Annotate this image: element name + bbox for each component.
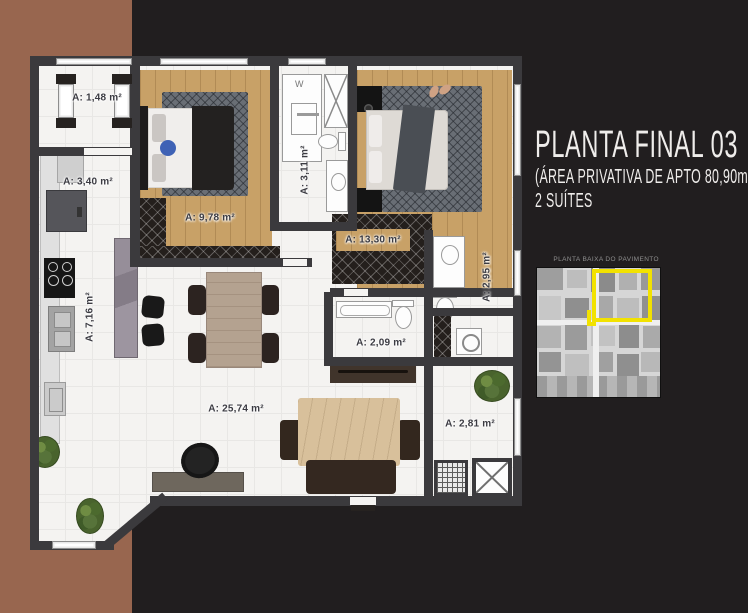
window-right-balcony xyxy=(514,398,521,456)
room-label-varanda-servico: A: 2,81 m² xyxy=(445,419,495,430)
dining-chair xyxy=(188,333,206,363)
toilet xyxy=(318,134,338,149)
pillow xyxy=(152,114,166,142)
suite1-wardrobe xyxy=(138,198,166,250)
dining-chair xyxy=(188,285,206,315)
plant-icon xyxy=(76,498,104,534)
title-suites: 2 SUÍTES xyxy=(535,190,593,213)
window-frame-cap xyxy=(56,74,76,84)
wall-bath2-bottom xyxy=(424,308,514,316)
door-gap-suite1 xyxy=(283,259,307,266)
shower-x-icon xyxy=(325,75,347,127)
entry-step xyxy=(351,505,375,511)
shower-box xyxy=(324,74,348,128)
dining-table xyxy=(206,272,262,368)
sink-vanity xyxy=(433,236,465,288)
title-subtitle: (ÁREA PRIVATIVA DE APTO 80,90m2) xyxy=(535,166,748,189)
dining-chair xyxy=(261,333,279,363)
cabinet xyxy=(46,190,87,232)
sofa-arm xyxy=(398,420,420,460)
window-top-closet xyxy=(288,58,326,65)
sink-vanity xyxy=(326,160,348,212)
window-frame-cap xyxy=(112,118,132,128)
bathtub xyxy=(336,301,392,318)
shaft-box xyxy=(472,458,512,497)
hanger-icon: W xyxy=(295,79,304,89)
miniplan xyxy=(537,268,660,397)
accent-pillow xyxy=(160,140,176,156)
oven xyxy=(48,306,75,352)
wall-lavabo-left xyxy=(324,292,333,366)
wall-lavabo-bottom xyxy=(324,357,514,366)
blanket xyxy=(192,106,234,190)
door-gap-suite2 xyxy=(344,289,368,296)
window-bottom-left xyxy=(52,541,96,549)
room-label-suite2: A: 13,30 m² xyxy=(345,235,401,246)
suite1-bed xyxy=(138,106,236,190)
room-label-banheiro1: A: 3,11 m² xyxy=(300,145,311,194)
kitchen-sink xyxy=(44,382,66,416)
suite2-bed xyxy=(356,84,448,214)
room-label-lavabo: A: 2,09 m² xyxy=(356,338,406,349)
pillow xyxy=(152,154,166,182)
window-frame-cap xyxy=(56,118,76,128)
window-right-suite2 xyxy=(514,84,521,176)
page-title: PLANTA FINAL 03 xyxy=(535,124,738,167)
room-label-cozinha: A: 7,16 m² xyxy=(85,292,96,342)
room-label-copa: A: 3,40 m² xyxy=(63,177,113,188)
washer-icon xyxy=(456,328,482,355)
dining-chair xyxy=(261,285,279,315)
shaft-x-icon xyxy=(476,462,508,493)
room-label-suite1: A: 9,78 m² xyxy=(185,213,235,224)
wall-left xyxy=(30,56,39,550)
entry-door-gap xyxy=(350,497,376,505)
sofa-seat xyxy=(306,460,396,494)
wall-bottom xyxy=(150,496,522,506)
wall-bath1-bottom xyxy=(270,222,357,231)
door-gap-balcony1 xyxy=(84,148,132,155)
stairs-hatch-icon xyxy=(434,460,468,496)
room-label-sala: A: 25,74 m² xyxy=(208,404,264,415)
floorplan-scene: W xyxy=(0,0,748,613)
wall-suite1-left xyxy=(130,56,140,267)
stool xyxy=(141,323,165,347)
pillow xyxy=(369,115,382,147)
sofa-blanket xyxy=(298,398,400,466)
wall-bath1-right xyxy=(348,56,357,231)
nightstand xyxy=(356,188,382,212)
sofa xyxy=(280,398,420,495)
stool xyxy=(141,295,165,319)
miniplan-highlight-step xyxy=(587,310,596,326)
miniplan-highlight xyxy=(592,269,652,322)
window-frame-cap xyxy=(112,74,132,84)
stove xyxy=(44,258,75,298)
window-top-suite1 xyxy=(160,58,248,65)
wall-bath1-left xyxy=(270,56,279,231)
window-balcony1-top xyxy=(56,58,132,65)
plant-icon xyxy=(474,370,510,402)
toilet xyxy=(395,306,412,329)
toilet-tank xyxy=(338,132,346,151)
miniplan-caption: PLANTA BAIXA DO PAVIMENTO xyxy=(527,256,659,263)
room-label-banheiro2: A: 2,95 m² xyxy=(482,252,493,302)
laundry-door xyxy=(434,314,451,357)
window-right-bath2 xyxy=(514,250,521,296)
tv-console xyxy=(330,366,416,383)
pillow xyxy=(369,151,382,183)
room-label-varanda-frente: A: 1,48 m² xyxy=(72,93,122,104)
